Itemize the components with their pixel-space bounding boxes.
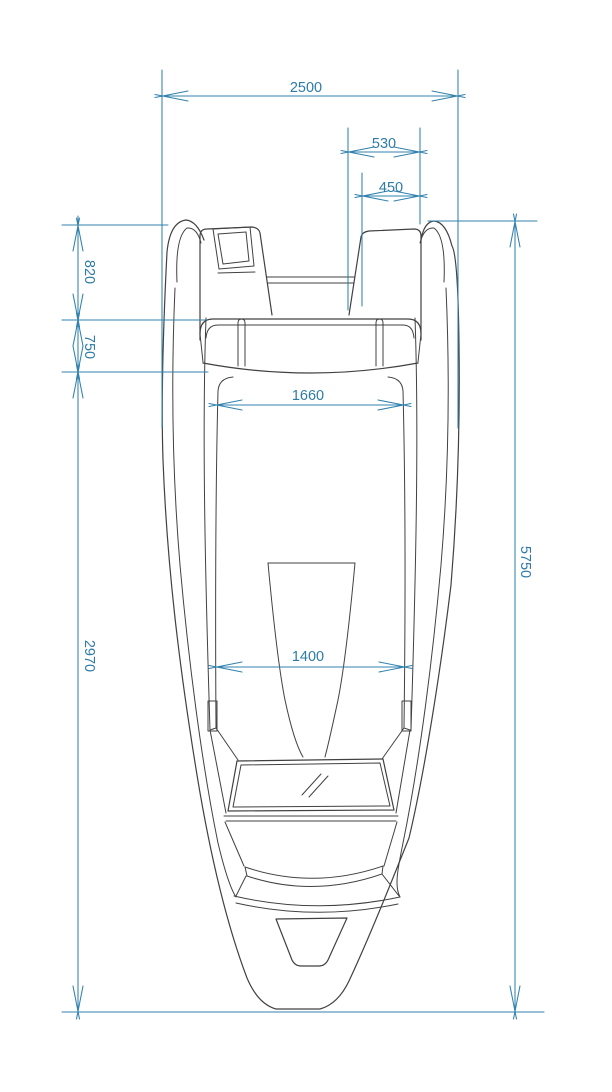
deck-u-curve-lower bbox=[247, 874, 382, 887]
windscreen-side-left bbox=[210, 730, 226, 813]
stern-hatch-lip bbox=[218, 272, 255, 273]
floor-corner-arc-right bbox=[388, 377, 403, 391]
right-cockpit-wall bbox=[403, 391, 405, 728]
hull-drawing bbox=[162, 220, 459, 1009]
dimension-forward-section: 2970 bbox=[73, 365, 97, 1019]
deck-u-curve-upper bbox=[245, 866, 383, 878]
dimension-beam-overall: 2500 bbox=[155, 80, 465, 101]
dim-label-450: 450 bbox=[379, 180, 403, 196]
dimension-layer: 2500 530 450 820 750 bbox=[62, 70, 544, 1019]
dim-label-1400: 1400 bbox=[292, 649, 324, 665]
deck-bevel-left bbox=[236, 876, 246, 896]
deck-u-end-right bbox=[382, 866, 383, 874]
dimension-cockpit-width-forward: 1400 bbox=[209, 649, 412, 672]
bench-post-right bbox=[376, 319, 383, 366]
deck-broad-curve-upper bbox=[234, 896, 400, 906]
bench-front-curve bbox=[203, 363, 418, 373]
wall-bracket-right bbox=[402, 701, 411, 731]
left-cockpit-wall bbox=[216, 391, 218, 728]
dim-label-2970: 2970 bbox=[81, 640, 97, 672]
deck-connector-right bbox=[384, 822, 397, 866]
windscreen-corner-left bbox=[210, 728, 238, 760]
dimension-stern-well-outer: 530 bbox=[341, 136, 427, 157]
left-stern-panel bbox=[200, 227, 272, 340]
dimension-length-overall: 5750 bbox=[510, 214, 533, 1019]
dim-label-530: 530 bbox=[372, 136, 396, 152]
dim-label-820: 820 bbox=[81, 260, 97, 284]
glass-glare-mark-1 bbox=[302, 774, 321, 795]
right-tube-cap-inner bbox=[420, 228, 444, 282]
dimension-cockpit-width-aft: 1660 bbox=[209, 388, 411, 410]
stern-hatch-inner bbox=[218, 232, 249, 264]
windscreen-side-right bbox=[396, 730, 410, 813]
bow-hatch bbox=[276, 918, 347, 966]
dim-label-1660: 1660 bbox=[292, 388, 324, 404]
bench-side-left bbox=[200, 334, 203, 362]
floor-corner-arc-left bbox=[218, 377, 233, 391]
dim-label-2500: 2500 bbox=[290, 80, 322, 96]
bench-top-outer bbox=[200, 319, 421, 334]
dim-label-5750: 5750 bbox=[517, 546, 533, 578]
technical-drawing-canvas: 2500 530 450 820 750 bbox=[0, 0, 612, 1092]
keel-strip-right bbox=[325, 563, 355, 757]
bench-post-left bbox=[238, 319, 245, 366]
dimension-seat-section: 750 bbox=[73, 313, 97, 379]
dim-label-750: 750 bbox=[81, 335, 97, 359]
deck-broad-curve-lower bbox=[236, 903, 398, 912]
left-tube-cap-inner bbox=[177, 228, 201, 282]
deck-connector-left bbox=[225, 822, 244, 866]
dimension-stern-section: 820 bbox=[73, 218, 97, 327]
dimension-stern-well-inner: 450 bbox=[355, 180, 427, 201]
bench-side-right bbox=[418, 334, 421, 362]
deck-bevel-right bbox=[382, 874, 399, 896]
glass-glare-mark-2 bbox=[309, 776, 328, 797]
right-stern-panel bbox=[349, 229, 421, 340]
deck-u-end-left bbox=[245, 867, 247, 876]
